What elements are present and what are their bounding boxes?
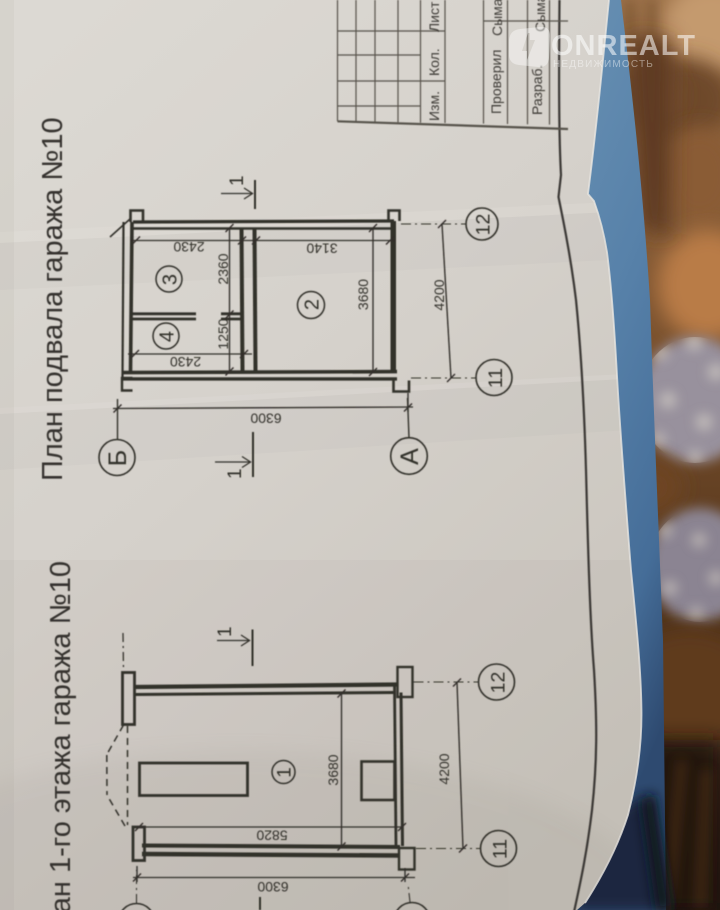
svg-text:11: 11 bbox=[490, 839, 512, 859]
svg-text:Б: Б bbox=[104, 450, 132, 466]
svg-text:2360: 2360 bbox=[215, 253, 231, 284]
svg-text:6300: 6300 bbox=[250, 411, 281, 427]
svg-text:12: 12 bbox=[488, 672, 510, 694]
svg-text:НЕДВИЖИМОСТЬ: НЕДВИЖИМОСТЬ bbox=[553, 59, 654, 70]
svg-text:5820: 5820 bbox=[256, 828, 287, 844]
svg-text:Лист: Лист bbox=[426, 1, 442, 32]
svg-text:11: 11 bbox=[485, 368, 507, 388]
svg-text:4200: 4200 bbox=[436, 753, 452, 784]
svg-text:План подвала гаража №10: План подвала гаража №10 bbox=[37, 117, 69, 481]
svg-text:2: 2 bbox=[302, 299, 324, 310]
svg-text:4: 4 bbox=[157, 331, 179, 342]
svg-text:1: 1 bbox=[215, 626, 236, 637]
svg-text:1: 1 bbox=[225, 468, 246, 479]
svg-text:Сымако: Сымако bbox=[489, 0, 505, 36]
svg-text:Изм.: Изм. bbox=[426, 91, 442, 121]
svg-text:2430: 2430 bbox=[170, 354, 201, 370]
svg-text:12: 12 bbox=[473, 214, 495, 236]
svg-text:4200: 4200 bbox=[431, 279, 447, 310]
svg-text:1: 1 bbox=[227, 175, 248, 186]
svg-text:3140: 3140 bbox=[306, 241, 337, 257]
svg-text:Кол.: Кол. bbox=[426, 48, 442, 76]
svg-text:1: 1 bbox=[275, 767, 296, 778]
svg-text:3680: 3680 bbox=[355, 279, 371, 310]
svg-text:3: 3 bbox=[160, 274, 182, 285]
svg-text:ONREALT: ONREALT bbox=[551, 30, 696, 62]
svg-text:Разраб.: Разраб. bbox=[529, 65, 545, 115]
svg-text:Проверил: Проверил bbox=[488, 50, 504, 114]
svg-text:План 1-го этажа гаража №10: План 1-го этажа гаража №10 bbox=[45, 561, 77, 910]
svg-text:2430: 2430 bbox=[173, 239, 204, 255]
svg-text:6300: 6300 bbox=[257, 879, 288, 895]
svg-text:3680: 3680 bbox=[325, 754, 341, 785]
svg-text:А: А bbox=[396, 448, 424, 465]
svg-text:1250: 1250 bbox=[215, 318, 231, 349]
